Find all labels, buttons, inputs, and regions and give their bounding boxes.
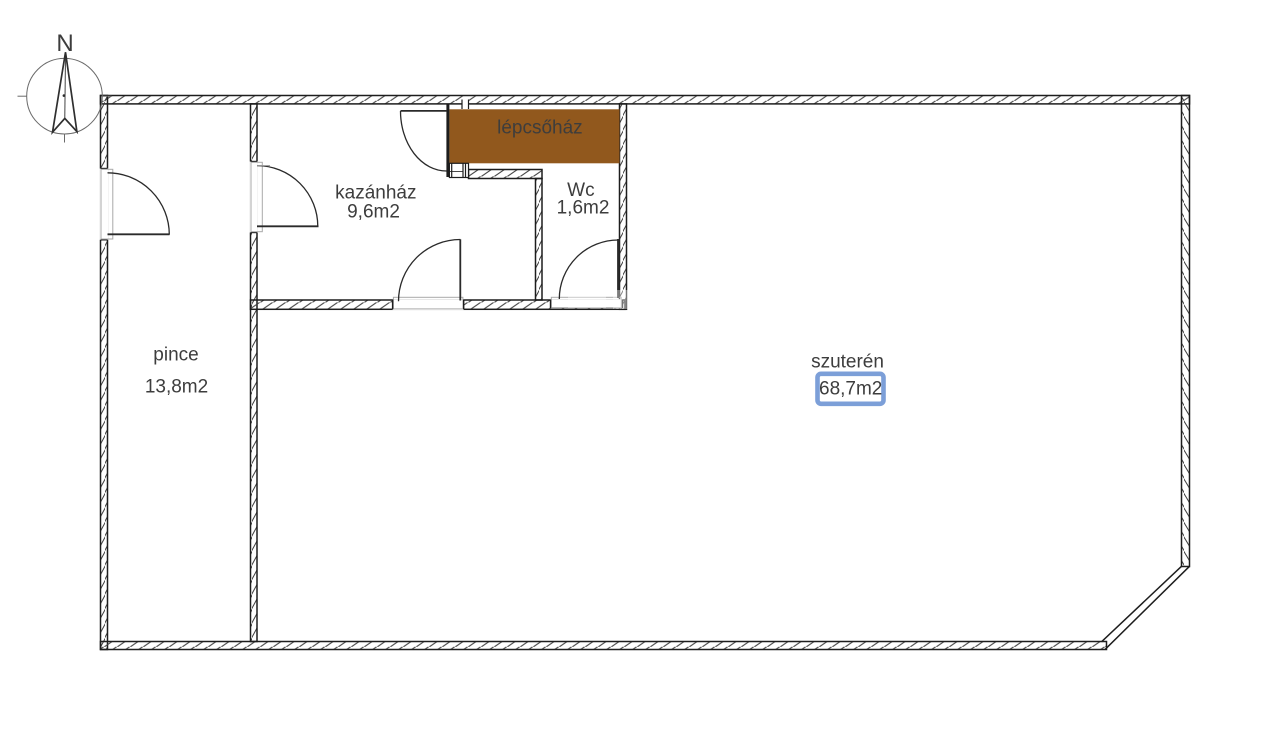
svg-text:9,6m2: 9,6m2 [347, 202, 400, 223]
svg-text:68,7m2: 68,7m2 [819, 379, 882, 400]
svg-text:13,8m2: 13,8m2 [145, 377, 208, 398]
svg-text:szuterén: szuterén [811, 352, 884, 373]
svg-text:kazánház: kazánház [335, 182, 416, 203]
svg-text:N: N [56, 30, 73, 57]
svg-text:lépcsőház: lépcsőház [497, 117, 583, 138]
svg-text:1,6m2: 1,6m2 [557, 198, 610, 219]
svg-text:pince: pince [153, 345, 198, 366]
